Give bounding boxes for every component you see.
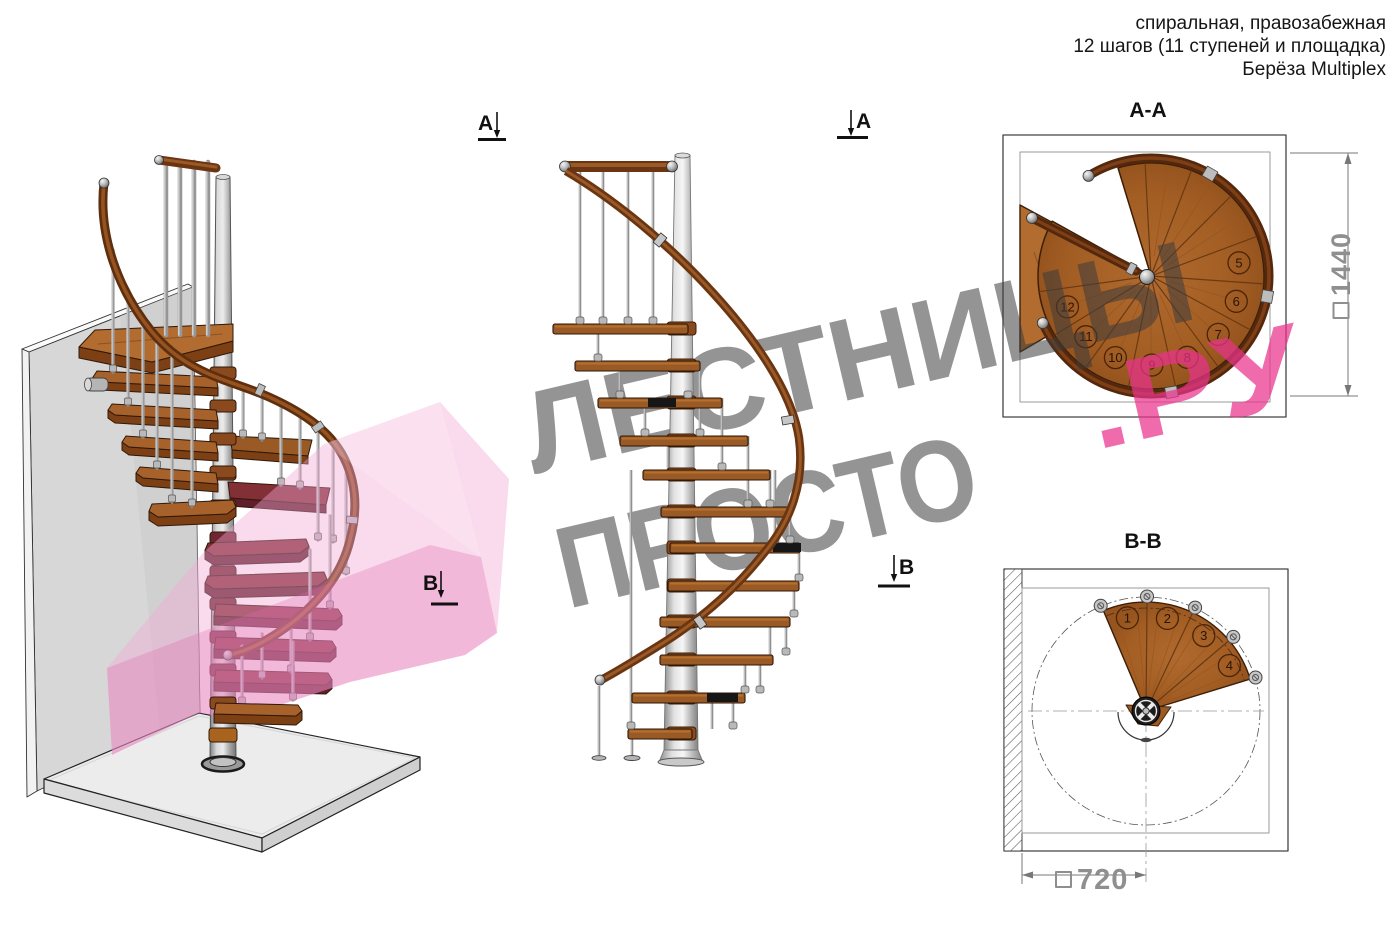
svg-text:А: А: [478, 112, 493, 135]
svg-text:3: 3: [1200, 628, 1207, 643]
svg-text:А-А: А-А: [1129, 99, 1166, 122]
svg-text:Берёза Multiplex: Берёза Multiplex: [1242, 59, 1386, 80]
svg-text:В: В: [423, 572, 438, 595]
svg-text:2: 2: [1164, 611, 1171, 626]
svg-text:В-В: В-В: [1124, 530, 1161, 553]
svg-text:5: 5: [1235, 255, 1242, 270]
svg-text:720: 720: [1077, 864, 1128, 896]
svg-text:спиральная, правозабежная: спиральная, правозабежная: [1136, 13, 1386, 34]
svg-text:1440: 1440: [1326, 232, 1356, 296]
svg-text:12 шагов (11 ступеней и площад: 12 шагов (11 ступеней и площадка): [1073, 36, 1386, 57]
svg-text:1: 1: [1124, 610, 1131, 625]
svg-text:А: А: [856, 110, 871, 133]
svg-text:4: 4: [1226, 658, 1233, 673]
svg-text:В: В: [899, 556, 914, 579]
svg-text:6: 6: [1233, 294, 1240, 309]
